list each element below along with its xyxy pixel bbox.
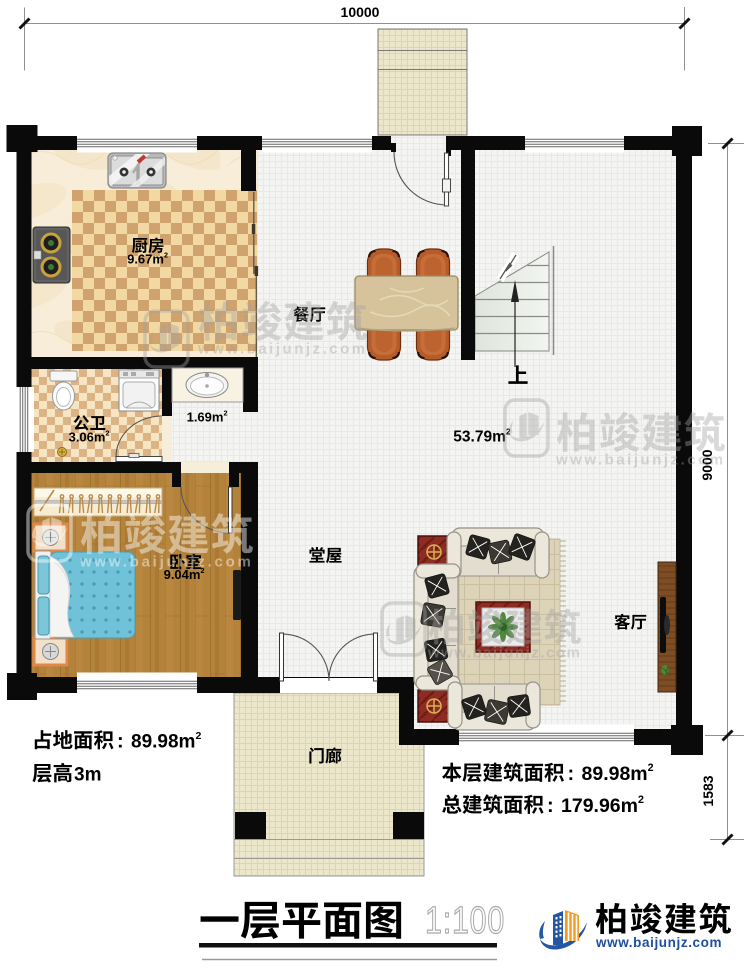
svg-text:www.baijunjz.com: www.baijunjz.com <box>595 935 722 950</box>
svg-text:3.06m2: 3.06m2 <box>69 429 110 445</box>
svg-text:www.baijunjz.com: www.baijunjz.com <box>197 341 368 358</box>
svg-text:89.98m2: 89.98m2 <box>582 762 654 785</box>
svg-text::: : <box>117 731 124 753</box>
svg-text:www.baijunjz.com: www.baijunjz.com <box>427 645 581 662</box>
svg-text:1583: 1583 <box>700 775 716 806</box>
svg-text::: : <box>547 795 554 817</box>
svg-text:89.98m2: 89.98m2 <box>131 730 201 753</box>
svg-text:1.69m2: 1.69m2 <box>187 409 228 425</box>
svg-text:9.67m2: 9.67m2 <box>127 251 168 267</box>
svg-text:53.79m2: 53.79m2 <box>453 427 511 446</box>
svg-text::: : <box>568 763 575 785</box>
svg-text:www.baijunjz.com: www.baijunjz.com <box>79 554 254 571</box>
svg-text:179.96m2: 179.96m2 <box>561 794 644 817</box>
svg-text:1:100: 1:100 <box>425 900 505 942</box>
svg-text:3m: 3m <box>74 765 101 786</box>
svg-text:www.baijunjz.com: www.baijunjz.com <box>555 452 726 469</box>
svg-text:10000: 10000 <box>341 4 380 20</box>
